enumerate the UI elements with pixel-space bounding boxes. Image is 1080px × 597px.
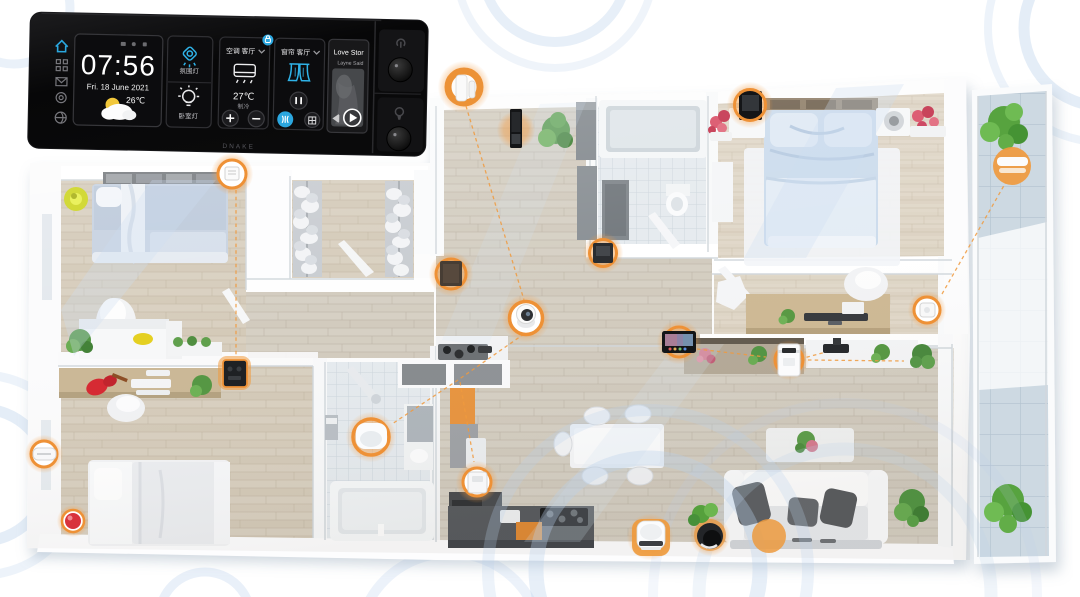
svg-text:Fri. 18 June 2021: Fri. 18 June 2021 [87, 82, 150, 92]
svg-text:Love Stor: Love Stor [334, 49, 365, 57]
svg-text:Layne Said: Layne Said [337, 60, 363, 67]
svg-text:07:56: 07:56 [80, 49, 156, 82]
svg-text:DNAKE: DNAKE [222, 143, 255, 151]
svg-text:26℃: 26℃ [126, 95, 146, 105]
svg-text:27℃: 27℃ [233, 91, 255, 102]
svg-text:卧室灯: 卧室灯 [178, 111, 198, 120]
svg-text:氛围灯: 氛围灯 [179, 66, 199, 75]
svg-text:制冷: 制冷 [237, 102, 249, 110]
